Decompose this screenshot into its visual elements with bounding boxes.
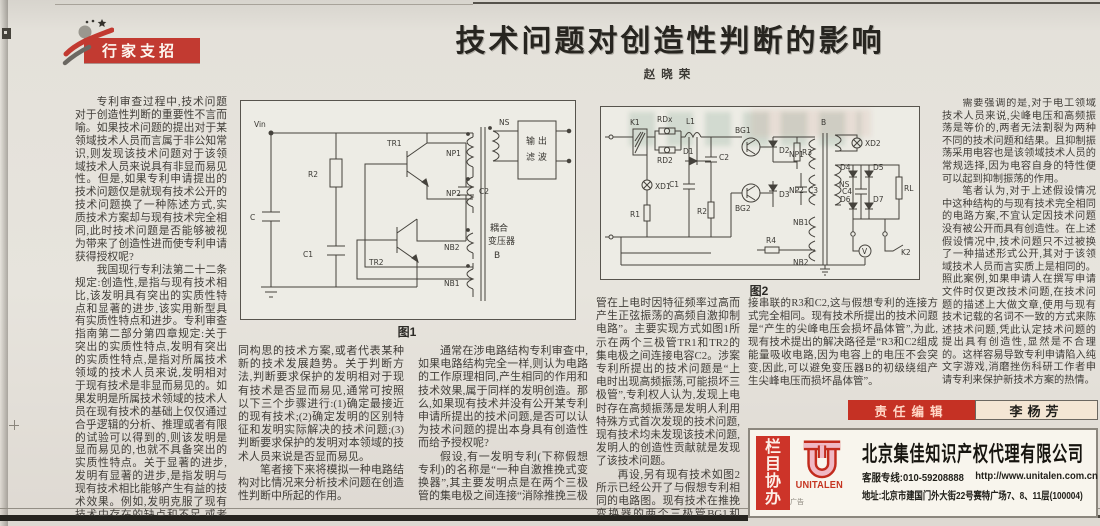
ad-hotline: 客服专线:010-59208888: [862, 470, 964, 485]
fig2-label-k1: K1: [630, 118, 640, 127]
figure-1: Vin C R2 C1 TR1 TR2 C2 NP1 NP2 NB2 NB1 N…: [240, 100, 576, 320]
fig2-circuit-drawing: K1 RDx RD2 L1 D1 C2 C1 R2 XD1 R1 BG1 BG2…: [601, 107, 919, 279]
column-badge-label: 行家支招: [102, 40, 202, 61]
paragraph: 需要强调的是,对于电工领域技术人员来说,尖峰电压和高频振荡是等价的,两者无法割裂…: [942, 98, 1096, 186]
fig2-label-c2: C2: [719, 153, 729, 162]
fig1-label-c1: C1: [303, 250, 313, 259]
fig2-label-d1: D1: [683, 147, 694, 156]
fig2-label-d6: D6: [840, 195, 851, 204]
text-column-1: 专利审查过程中,技术问题对于创造性判断的重要性不言而喻。如果技术问题的提出对于某…: [75, 96, 227, 516]
fig2-label-nb1: NB1: [793, 218, 809, 227]
advertisement-box: 栏 目 协 办 UNITALEN 广告 北京集佳知识产权代理有限公司 客服专线:…: [748, 428, 1098, 518]
fig2-label-v: V: [862, 247, 868, 256]
fig1-label-ns: NS: [499, 118, 510, 127]
fig1-label-c2: C2: [479, 187, 489, 196]
fig2-label-rdx: RDx: [657, 115, 673, 124]
text-column-6: 需要强调的是,对于电工领域技术人员来说,尖峰电压和高频振荡是等价的,两者无法割裂…: [942, 98, 1096, 399]
fig2-label-r4: R4: [766, 236, 776, 245]
text-column-4: 管在上电时因特征频率过高而产生正弦振荡的高频自激抑制电路”。主要实现方式如图1所…: [596, 297, 740, 516]
figure-2: K1 RDx RD2 L1 D1 C2 C1 R2 XD1 R1 BG1 BG2…: [600, 106, 920, 280]
fig2-label-r2: R2: [697, 207, 707, 216]
fig1-label-r2: R2: [308, 170, 318, 179]
strip-char: 办: [765, 491, 781, 507]
fig1-circuit-drawing: Vin C R2 C1 TR1 TR2 C2 NP1 NP2 NB2 NB1 N…: [241, 101, 575, 319]
fig2-label-rd2: RD2: [657, 156, 673, 165]
column-sponsor-strip: 栏 目 协 办: [756, 436, 790, 510]
fig1-label-filter-1: 输 出: [526, 135, 547, 147]
ad-contact-line: 客服专线:010-59208888 http://www.unitalen.co…: [862, 470, 1098, 485]
text-column-3: 通常在涉电路结构专利审查中,如果电路结构完全一样,则认为电路的工作原理相同,产生…: [418, 345, 588, 516]
fig1-label-np1: NP1: [446, 149, 461, 158]
editor-name: 李杨芳: [975, 400, 1098, 420]
fig2-label-d4: D4: [840, 163, 851, 172]
fig2-label-np2: NP2: [789, 186, 804, 195]
fig2-label-r1: R1: [630, 210, 640, 219]
fig2-label-xd2: XD2: [865, 139, 881, 148]
paragraph: 笔者接下来将模拟一种电路结构对比情况来分析技术问题在创造性判断中所起的作用。: [238, 464, 404, 504]
text-column-5: 接串联的R3和C2,这与假想专利的连接方式完全相同。现有技术所提出的技术问题是“…: [748, 297, 938, 399]
article-title: 技术问题对创造性判断的影响: [420, 16, 920, 60]
paragraph: 同构思的技术方案,或者代表某种新的技术发展趋势。关于判断方法,判断要求保护的发明…: [238, 345, 404, 464]
paragraph: 通常在涉电路结构专利审查中,如果电路结构完全一样,则认为电路的工作原理相同,产生…: [418, 345, 588, 451]
fig2-label-rl: RL: [904, 184, 914, 193]
fig2-label-np1: NP1: [789, 150, 804, 159]
paragraph: 专利审查过程中,技术问题对于创造性判断的重要性不言而喻。如果技术问题的提出对于某…: [75, 96, 227, 264]
fig2-label-l1: L1: [686, 117, 695, 126]
fig1-label-coupling-2: 变压器: [488, 235, 515, 247]
strip-char: 栏: [765, 440, 781, 456]
text-column-2: 同构思的技术方案,或者代表某种新的技术发展趋势。关于判断方法,判断要求保护的发明…: [238, 345, 404, 516]
fig1-label-nb1: NB1: [444, 279, 460, 288]
fig2-label-nb2: NB2: [793, 258, 809, 267]
fig2-label-c3: C3: [808, 186, 818, 195]
paragraph: 接串联的R3和C2,这与假想专利的连接方式完全相同。现有技术所提出的技术问题是“…: [748, 297, 938, 388]
unitalen-logo-icon: [796, 437, 848, 479]
fig1-label-nb2: NB2: [444, 243, 460, 252]
paragraph: 假设,有一发明专利(下称假想专利)的名称是“一种自激推挽式变换器”,其主要发明点…: [418, 451, 588, 504]
ad-address: 地址:北京市建国门外大街22号赛特广场7、8、11层(100004): [862, 488, 1099, 503]
paragraph: 再设,另有现有技术如图2所示已经公开了与假想专利相同的电路图。现有技术在推挽变换…: [596, 469, 740, 516]
fig1-label-np2: NP2: [446, 189, 461, 198]
top-rule-dark: [473, 2, 1100, 4]
fig2-label-b: B: [821, 118, 826, 127]
badge-figure-icon: [62, 18, 114, 66]
ad-company-name: 北京集佳知识产权代理有限公司: [862, 438, 1084, 468]
page-edge-shadow: [0, 0, 8, 526]
fig2-label-d7: D7: [873, 195, 884, 204]
fig1-label-coupling-1: 耦合: [490, 222, 508, 234]
fig1-label-tr2: TR2: [368, 258, 384, 267]
strip-char: 协: [765, 474, 781, 490]
fig2-label-bg2: BG2: [735, 204, 751, 213]
fig2-label-xd1: XD1: [655, 182, 671, 191]
ad-mark: 广告: [790, 497, 804, 507]
paragraph: 笔者认为,对于上述假设情况中这种结构的与现有技术完全相同的电路方案,不宜认定因技…: [942, 186, 1096, 388]
fig2-label-d5: D5: [873, 163, 884, 172]
top-rule-light: [55, 4, 473, 5]
newspaper-page: 行家支招 技术问题对创造性判断的影响 赵晓荣 专利审查过程中,技术问题对于创造性…: [0, 0, 1100, 526]
figure-1-caption: 图1: [240, 323, 574, 340]
ad-website: http://www.unitalen.com.cn: [975, 470, 1098, 485]
fig1-label-filter-2: 滤 波: [526, 151, 547, 163]
figure-2-caption: 图2: [600, 282, 918, 299]
fig1-label-vin: Vin: [254, 120, 266, 129]
editor-label: 责任编辑: [848, 400, 975, 420]
fig1-label-coupling-3: B: [494, 251, 500, 261]
registration-mark: [2, 28, 11, 39]
article-author: 赵晓荣: [420, 66, 920, 82]
strip-char: 目: [765, 457, 781, 473]
fig2-label-bg1: BG1: [735, 126, 751, 135]
fig1-label-c: C: [250, 213, 255, 222]
fig2-label-c4: C4: [842, 187, 852, 196]
crosshair-mark: [9, 420, 19, 430]
paragraph: 管在上电时因特征频率过高而产生正弦振荡的高频自激抑制电路”。主要实现方式如图1所…: [596, 297, 740, 469]
paragraph: 我国现行专利法第二十二条规定:创造性,是指与现有技术相比,该发明具有突出的实质性…: [75, 264, 227, 516]
fig1-label-tr1: TR1: [386, 139, 402, 148]
fig2-label-k2: K2: [901, 248, 911, 257]
unitalen-logo-text: UNITALEN: [788, 480, 851, 491]
